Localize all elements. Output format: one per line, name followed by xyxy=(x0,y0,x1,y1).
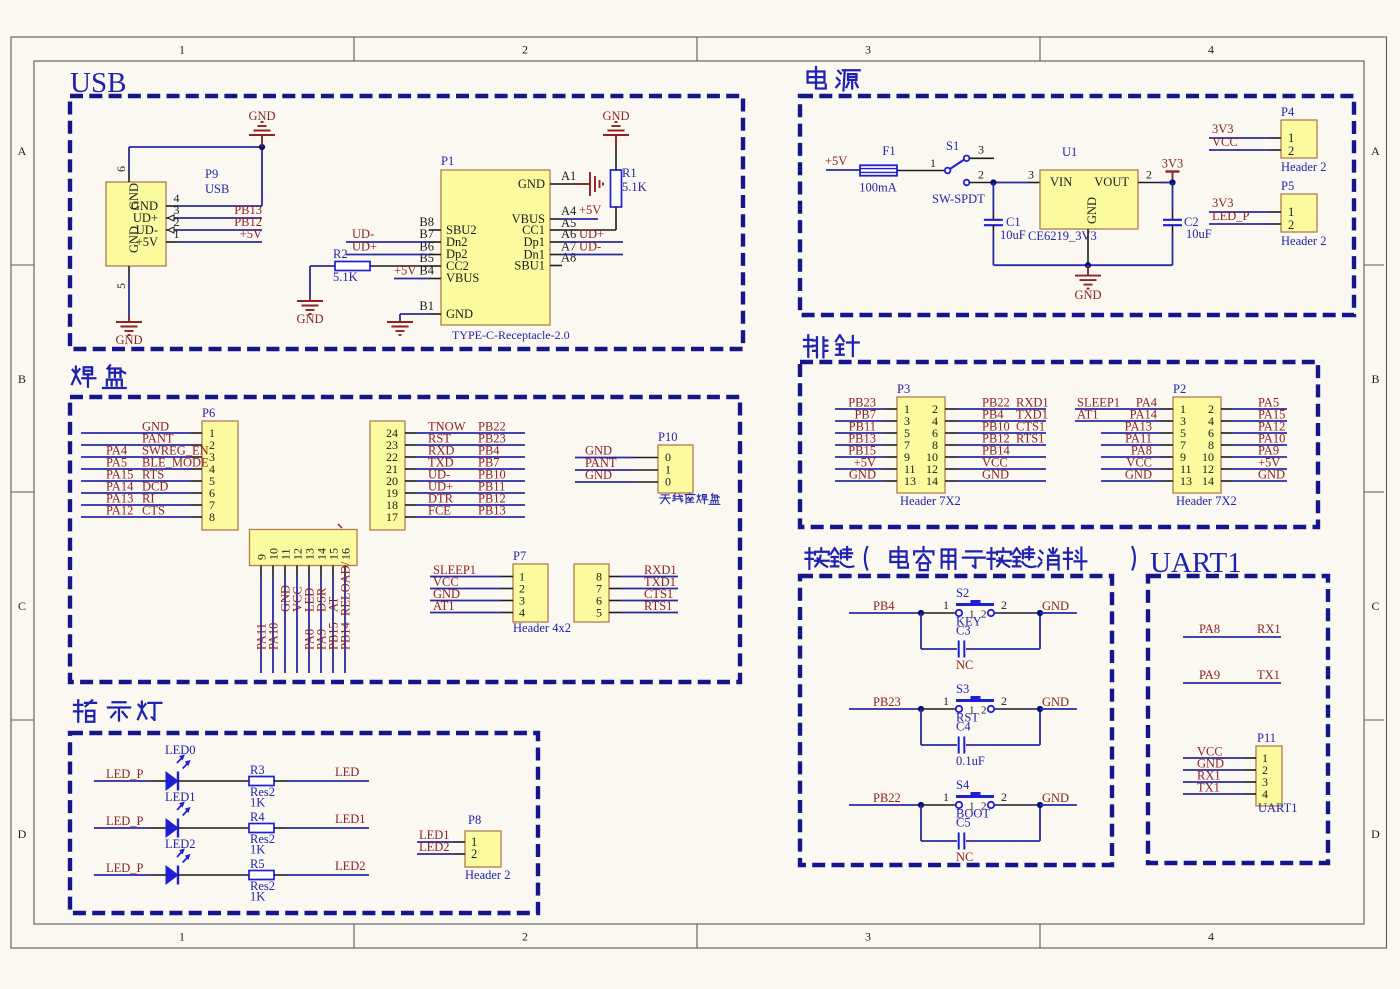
svg-text:2: 2 xyxy=(471,847,477,861)
svg-text:+5V: +5V xyxy=(579,203,601,217)
svg-text:1: 1 xyxy=(179,43,185,57)
svg-text:1: 1 xyxy=(930,156,936,170)
svg-text:Header 2: Header 2 xyxy=(1281,234,1326,248)
svg-text:14: 14 xyxy=(1202,474,1214,488)
svg-text:Header 4x2: Header 4x2 xyxy=(513,621,571,635)
svg-text:3V3: 3V3 xyxy=(1162,157,1184,171)
svg-text:+5V: +5V xyxy=(136,235,158,249)
svg-text:LED2: LED2 xyxy=(165,837,196,851)
svg-text:GND: GND xyxy=(1042,791,1069,805)
svg-text:AT1: AT1 xyxy=(433,599,455,613)
svg-text:Header 2: Header 2 xyxy=(465,868,510,882)
svg-text:LED_P: LED_P xyxy=(106,767,144,781)
svg-text:GND: GND xyxy=(518,177,545,191)
svg-text:3: 3 xyxy=(865,43,871,57)
svg-text:B1: B1 xyxy=(419,299,434,313)
svg-text:LED2: LED2 xyxy=(335,859,366,873)
svg-text:GND: GND xyxy=(446,307,473,321)
svg-text:1K: 1K xyxy=(250,843,265,857)
svg-text:P4: P4 xyxy=(1281,105,1295,119)
svg-text:S3: S3 xyxy=(956,682,969,696)
svg-text:F1: F1 xyxy=(882,144,895,158)
svg-text:P10: P10 xyxy=(658,430,677,444)
svg-text:GND: GND xyxy=(296,312,323,326)
svg-text:1: 1 xyxy=(943,790,949,804)
svg-text:NC: NC xyxy=(956,658,973,672)
svg-text:R3: R3 xyxy=(250,763,265,777)
svg-text:3V3: 3V3 xyxy=(1212,122,1234,136)
svg-text:A8: A8 xyxy=(561,251,576,265)
svg-text:P8: P8 xyxy=(468,813,481,827)
svg-text:C5: C5 xyxy=(956,816,971,830)
svg-text:GND: GND xyxy=(849,468,876,482)
svg-text:6: 6 xyxy=(114,166,128,172)
svg-text:D: D xyxy=(1371,827,1380,841)
svg-text:SW-SPDT: SW-SPDT xyxy=(932,192,985,206)
svg-text:C3: C3 xyxy=(956,624,971,638)
svg-text:GND: GND xyxy=(585,468,612,482)
svg-text:2: 2 xyxy=(1001,790,1007,804)
svg-text:+5V: +5V xyxy=(394,264,416,278)
svg-text:NC: NC xyxy=(956,850,973,864)
svg-text:LED1: LED1 xyxy=(335,812,366,826)
svg-text:R2: R2 xyxy=(333,247,348,261)
svg-text:B: B xyxy=(18,372,26,386)
svg-text:GND: GND xyxy=(1085,197,1099,224)
svg-text:TX1: TX1 xyxy=(1197,781,1220,795)
svg-text:RX1: RX1 xyxy=(1257,622,1281,636)
svg-text:2: 2 xyxy=(1001,598,1007,612)
svg-text:3: 3 xyxy=(978,143,984,157)
svg-text:R1: R1 xyxy=(622,166,637,180)
svg-text:1: 1 xyxy=(179,930,185,944)
svg-text:AT1: AT1 xyxy=(1077,408,1099,422)
svg-text:P1: P1 xyxy=(441,154,454,168)
svg-text:GND: GND xyxy=(1125,468,1152,482)
svg-text:0: 0 xyxy=(665,475,671,489)
svg-text:P2: P2 xyxy=(1173,382,1186,396)
svg-text:3: 3 xyxy=(1028,167,1034,181)
svg-text:1: 1 xyxy=(943,694,949,708)
svg-text:P9: P9 xyxy=(205,167,218,181)
svg-text:Header 7X2: Header 7X2 xyxy=(1176,494,1237,508)
svg-text:LED_P: LED_P xyxy=(106,861,144,875)
svg-text:+5V: +5V xyxy=(240,227,262,241)
svg-text:USB: USB xyxy=(205,182,229,196)
svg-text:RTS1: RTS1 xyxy=(644,599,672,613)
svg-text:2: 2 xyxy=(522,930,528,944)
svg-text:8: 8 xyxy=(209,510,215,524)
svg-text:100mA: 100mA xyxy=(859,181,897,195)
svg-text:R5: R5 xyxy=(250,857,265,871)
svg-text:P11: P11 xyxy=(1257,731,1276,745)
svg-text:PB4: PB4 xyxy=(873,599,895,613)
svg-text:4: 4 xyxy=(1262,787,1268,801)
svg-text:PB13: PB13 xyxy=(478,504,506,518)
svg-text:+5V: +5V xyxy=(825,154,847,168)
svg-text:10uF: 10uF xyxy=(1000,228,1026,242)
svg-text:C: C xyxy=(18,599,26,613)
svg-text:GND: GND xyxy=(602,109,629,123)
svg-text:B: B xyxy=(1371,372,1379,386)
svg-text:GND: GND xyxy=(982,468,1009,482)
svg-text:VBUS: VBUS xyxy=(446,271,479,285)
svg-text:4: 4 xyxy=(1208,43,1214,57)
svg-text:C: C xyxy=(1371,599,1379,613)
svg-text:A1: A1 xyxy=(561,169,576,183)
svg-text:RTS1: RTS1 xyxy=(1016,432,1044,446)
svg-text:1: 1 xyxy=(1288,205,1294,219)
svg-text:GND: GND xyxy=(1042,599,1069,613)
svg-text:2: 2 xyxy=(1001,694,1007,708)
svg-text:P6: P6 xyxy=(202,406,215,420)
svg-text:Header 2: Header 2 xyxy=(1281,160,1326,174)
svg-text:2: 2 xyxy=(981,609,987,621)
svg-text:A: A xyxy=(18,144,27,158)
svg-text:S1: S1 xyxy=(946,139,959,153)
svg-text:PA8: PA8 xyxy=(1199,622,1220,636)
svg-text:LED_P: LED_P xyxy=(106,814,144,828)
svg-text:UD-: UD- xyxy=(579,240,601,254)
svg-text:PB23: PB23 xyxy=(873,695,901,709)
svg-text:0.1uF: 0.1uF xyxy=(956,754,985,768)
svg-text:CE6219_3V3: CE6219_3V3 xyxy=(1028,229,1097,243)
svg-text:VCC: VCC xyxy=(1212,135,1238,149)
svg-text:GND: GND xyxy=(1042,695,1069,709)
svg-text:1: 1 xyxy=(943,598,949,612)
svg-text:TYPE-C-Receptacle-2.0: TYPE-C-Receptacle-2.0 xyxy=(452,328,570,342)
svg-text:1: 1 xyxy=(1288,131,1294,145)
svg-text:UD+: UD+ xyxy=(352,240,377,254)
svg-text:5: 5 xyxy=(596,606,602,620)
svg-text:P5: P5 xyxy=(1281,179,1294,193)
svg-text:CTS: CTS xyxy=(142,504,165,518)
svg-text:R4: R4 xyxy=(250,810,265,824)
svg-text:2: 2 xyxy=(1288,218,1294,232)
svg-text:PB22: PB22 xyxy=(873,791,901,805)
svg-text:4: 4 xyxy=(519,606,525,620)
svg-text:13: 13 xyxy=(904,474,916,488)
svg-text:16: 16 xyxy=(339,548,353,560)
svg-text:VOUT: VOUT xyxy=(1094,175,1129,189)
svg-text:D: D xyxy=(18,827,27,841)
svg-text:PA12: PA12 xyxy=(106,504,133,518)
svg-text:5: 5 xyxy=(114,283,128,289)
svg-text:LED_P: LED_P xyxy=(1212,209,1250,223)
svg-text:14: 14 xyxy=(926,474,938,488)
svg-text:13: 13 xyxy=(1180,474,1192,488)
svg-text:2: 2 xyxy=(981,705,987,717)
svg-text:U1: U1 xyxy=(1062,145,1077,159)
svg-text:LED1: LED1 xyxy=(165,790,196,804)
svg-text:C1: C1 xyxy=(1006,215,1021,229)
svg-text:PB14: PB14 xyxy=(339,621,353,650)
svg-text:A: A xyxy=(1371,144,1380,158)
svg-text:5.1K: 5.1K xyxy=(333,270,358,284)
svg-text:LED0: LED0 xyxy=(165,743,196,757)
svg-text:17: 17 xyxy=(386,510,398,524)
svg-text:UART1: UART1 xyxy=(1258,801,1298,815)
svg-text:Header 7X2: Header 7X2 xyxy=(900,494,961,508)
svg-text:FCE: FCE xyxy=(428,504,451,518)
svg-text:GND: GND xyxy=(1258,468,1285,482)
svg-text:LED: LED xyxy=(335,765,359,779)
svg-text:4: 4 xyxy=(1208,930,1214,944)
svg-text:2: 2 xyxy=(1288,144,1294,158)
svg-text:RELOAD/: RELOAD/ xyxy=(339,561,353,616)
svg-text:3V3: 3V3 xyxy=(1212,196,1234,210)
svg-text:SBU1: SBU1 xyxy=(514,259,545,273)
svg-text:1K: 1K xyxy=(250,890,265,904)
svg-text:TX1: TX1 xyxy=(1257,668,1280,682)
svg-text:P7: P7 xyxy=(513,549,526,563)
svg-text:C4: C4 xyxy=(956,720,971,734)
svg-text:PA10: PA10 xyxy=(267,623,281,650)
svg-text:S2: S2 xyxy=(956,586,969,600)
svg-text:1K: 1K xyxy=(250,796,265,810)
svg-text:PA9: PA9 xyxy=(1199,668,1220,682)
svg-text:5.1K: 5.1K xyxy=(622,180,647,194)
svg-text:2: 2 xyxy=(522,43,528,57)
svg-text:GND: GND xyxy=(1074,288,1101,302)
svg-text:GND: GND xyxy=(248,109,275,123)
svg-text:VIN: VIN xyxy=(1050,175,1072,189)
svg-text:GND: GND xyxy=(115,333,142,347)
svg-text:S4: S4 xyxy=(956,778,970,792)
svg-text:10uF: 10uF xyxy=(1186,227,1212,241)
svg-text:P3: P3 xyxy=(897,382,910,396)
svg-text:2: 2 xyxy=(978,167,984,181)
svg-text:2: 2 xyxy=(1146,167,1152,181)
svg-text:LED2: LED2 xyxy=(419,840,450,854)
svg-text:3: 3 xyxy=(865,930,871,944)
